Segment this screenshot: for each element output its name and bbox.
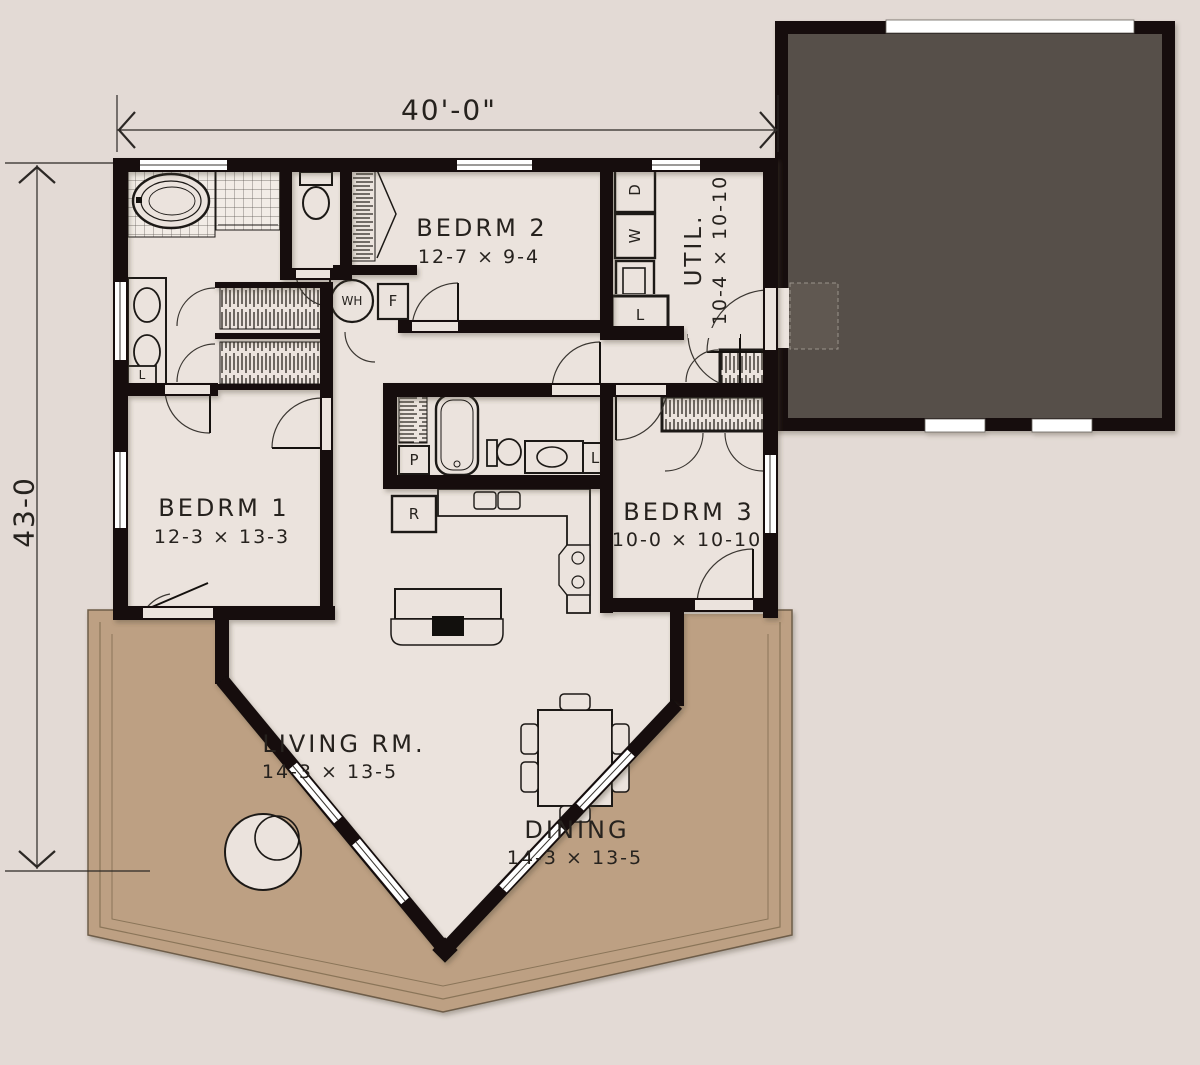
room-size-bedrm3: 10-0 × 10-10 [612,529,762,551]
room-size-bedrm2: 12-7 × 9-4 [418,246,540,268]
toilet-icon [303,187,329,219]
chair-icon [560,694,590,710]
room-label-util: UTIL. 10-4 × 10-10 [680,175,733,325]
hallbath-linen-label: L [591,449,599,467]
chair-icon [521,762,538,792]
garage [773,20,1169,432]
garden-tub-icon [133,174,209,228]
refrigerator-label: R [409,505,419,523]
garage-step [790,283,838,349]
room-label-bedrm3: BEDRM 3 [623,498,754,526]
room-label-dining: DINING [524,816,629,844]
room-size-living: 14-3 × 13-5 [262,761,398,783]
dim-depth-label: 43-0 [8,476,41,548]
furnace-label: F [389,292,398,310]
util-name: UTIL. [680,175,709,325]
master-linen-label: L [139,368,146,382]
shower-icon [216,166,280,230]
room-label-bedrm2: BEDRM 2 [416,214,547,242]
firebox [432,616,464,636]
washer-label: W [626,229,644,244]
garage-window-2 [1032,419,1092,432]
util-linen-label: L [636,306,644,324]
hall-closet [720,350,768,388]
water-heater-label: WH [342,294,363,308]
garage-top-opening [886,20,1134,33]
dim-width-label: 40'-0" [401,94,497,127]
closet-hatch [220,342,328,384]
toilet-tank-icon [300,172,332,185]
room-size-bedrm1: 12-3 × 13-3 [154,526,290,548]
shelves-hatch [399,393,427,443]
floor-plan-canvas: 40'-0" 43-0 BEDRM 2 12-7 × 9-4 UTIL. 10-… [0,0,1200,1065]
kitchen-sink-icon [474,492,496,509]
util-size: 10-4 × 10-10 [709,175,733,325]
toilet-tank-icon [487,440,497,466]
chair-icon [521,724,538,754]
garage-window-1 [925,419,985,432]
closet-hatch [220,287,328,329]
bedroom3-closet [662,397,768,431]
room-size-dining: 14-3 × 13-5 [507,847,643,869]
dryer-label: D [626,184,644,196]
room-label-living: LIVING RM. [262,730,425,758]
toilet-icon [497,439,521,465]
pantry-label: P [409,451,418,469]
room-label-bedrm1: BEDRM 1 [158,494,289,522]
fireplace [391,589,503,645]
living-room-chair [225,814,301,890]
